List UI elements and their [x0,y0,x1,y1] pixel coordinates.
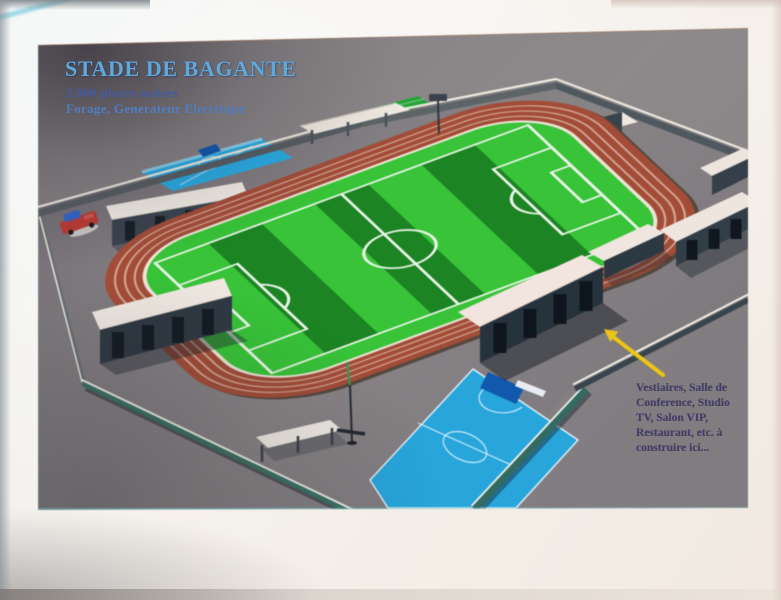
page-title: STADE DE BAGANTE [65,56,297,82]
chromatic-fringe-bottom [38,508,748,509]
subtitle-capacity: 2.000 places assises [66,85,178,101]
subtitle-facilities: Forage, Generateur Electrique [66,101,245,117]
annotation-text: Vestiaires, Salle de Conference, Studio … [636,381,754,456]
photo-frame: STADE DE BAGANTE 2.000 places assises Fo… [0,0,781,600]
